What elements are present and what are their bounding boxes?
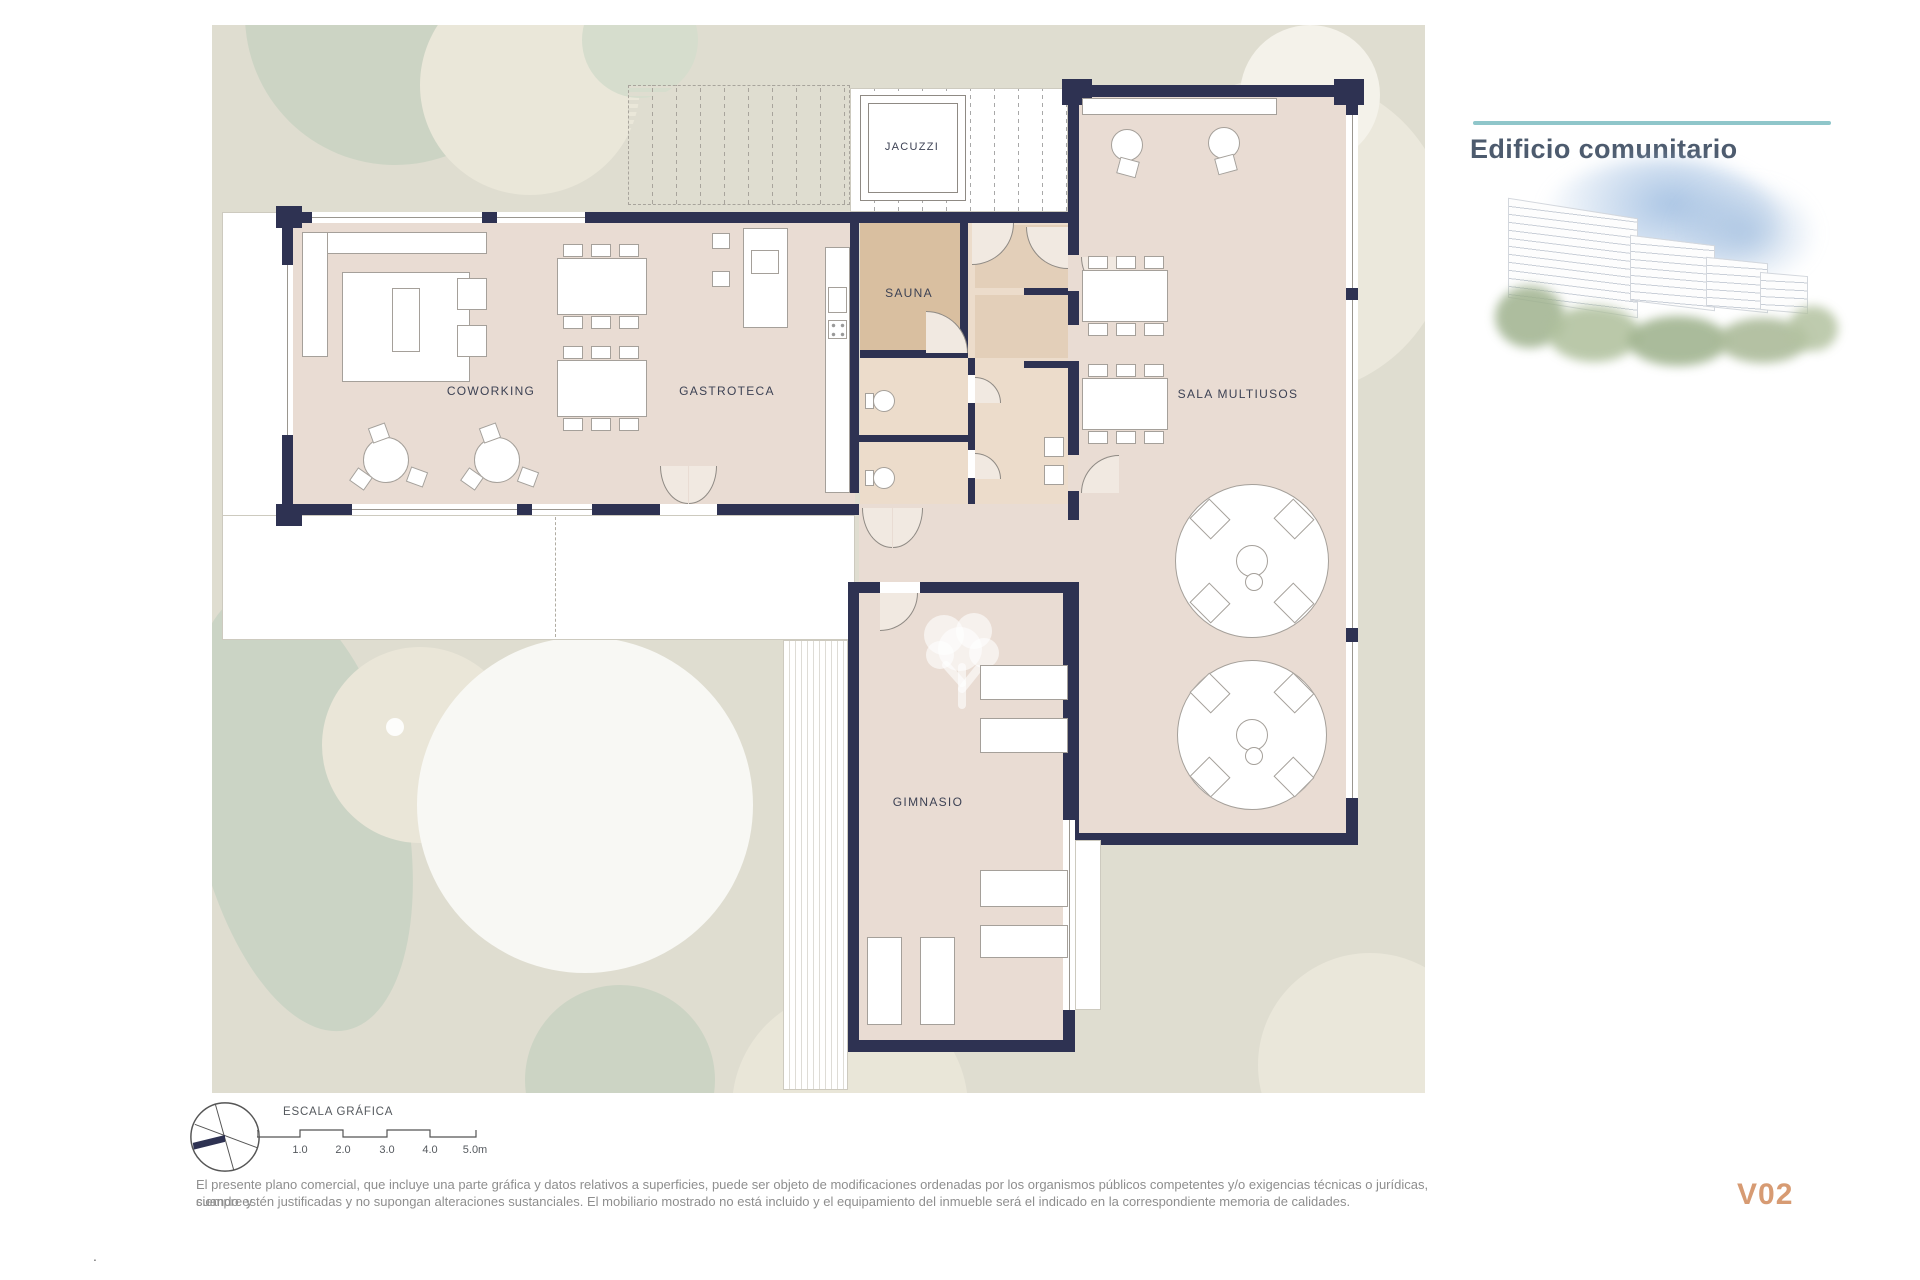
chair — [1144, 256, 1164, 269]
side-table — [1245, 573, 1263, 591]
door-opening — [1068, 255, 1079, 291]
deck-striped — [783, 640, 848, 1090]
landscape-circle — [525, 985, 715, 1093]
armchair — [457, 278, 487, 310]
scale-tick-label: 2.0 — [326, 1144, 360, 1156]
pouf — [1208, 127, 1240, 159]
kitchen-counter — [825, 247, 850, 493]
chair — [563, 316, 583, 329]
chair — [1116, 323, 1136, 336]
scale-tick-label: 4.0 — [413, 1144, 447, 1156]
wall-segment — [859, 435, 968, 442]
chair — [619, 346, 639, 359]
render-vegetation — [1548, 306, 1640, 362]
chair — [1116, 256, 1136, 269]
chair — [563, 244, 583, 257]
locker — [1044, 437, 1064, 457]
terrace-strip — [1075, 840, 1101, 1010]
stool — [712, 271, 730, 287]
chair — [1116, 364, 1136, 377]
toilet — [873, 390, 895, 412]
door-opening — [660, 504, 717, 515]
window — [497, 212, 585, 223]
armchair — [457, 325, 487, 357]
scale-tick-label: 1.0 — [283, 1144, 317, 1156]
chair — [619, 316, 639, 329]
pergola-dashed-area — [628, 85, 850, 205]
wall-segment — [1068, 833, 1358, 845]
table — [1082, 270, 1168, 322]
wall-segment — [848, 582, 859, 1052]
landscape-circle — [386, 718, 404, 736]
terrace-divider-line — [555, 517, 556, 637]
wall-segment — [850, 212, 859, 493]
render-vegetation — [1788, 306, 1838, 351]
table — [557, 258, 647, 315]
chair — [619, 244, 639, 257]
chair — [1088, 364, 1108, 377]
scale-bar-line — [257, 1126, 483, 1142]
window — [1346, 115, 1358, 288]
window — [282, 265, 293, 435]
landscape-circle — [1258, 953, 1425, 1093]
render-vegetation — [1628, 316, 1728, 366]
chair — [591, 418, 611, 431]
room-label-coworking: COWORKING — [447, 384, 535, 398]
chair — [1144, 431, 1164, 444]
table — [557, 360, 647, 417]
sofa — [302, 232, 328, 357]
chair — [1088, 256, 1108, 269]
scale-tick-label: 3.0 — [370, 1144, 404, 1156]
window — [312, 212, 482, 223]
room-label-sala-multiusos: SALA MULTIUSOS — [1178, 387, 1299, 401]
gym-equipment — [980, 870, 1068, 907]
scale-bar-title: ESCALA GRÁFICA — [283, 1106, 393, 1118]
floor-plan: JACUZZI COWORKING GASTROTECA — [212, 25, 1425, 1093]
cooktop — [828, 320, 847, 339]
page: { "header": { "title": "Edificio comunit… — [0, 0, 1920, 1280]
chair — [1088, 323, 1108, 336]
disclaimer-line-2: cuando estén justificadas y no supongan … — [196, 1193, 1456, 1210]
wall-segment — [1068, 85, 1358, 97]
counter — [1082, 98, 1277, 115]
window — [1346, 300, 1358, 628]
sofa — [302, 232, 487, 254]
gym-equipment — [980, 718, 1068, 753]
accent-line — [1473, 121, 1831, 125]
passage-opening — [1068, 520, 1079, 582]
room-label-jacuzzi: JACUZZI — [885, 141, 939, 153]
chair — [619, 418, 639, 431]
version-label: V02 — [1737, 1178, 1793, 1212]
render-building — [1706, 257, 1768, 314]
corner-mark: . — [93, 1248, 97, 1264]
toilet-tank — [865, 470, 874, 486]
door-opening — [880, 582, 920, 593]
chair — [591, 316, 611, 329]
stool — [712, 233, 730, 249]
scale-tick-label: 5.0m — [458, 1144, 492, 1156]
gym-mat — [920, 937, 955, 1025]
gym-equipment — [980, 665, 1068, 700]
gym-equipment — [980, 925, 1068, 958]
door-opening — [968, 375, 975, 403]
changing-cubicle — [975, 295, 1068, 358]
gym-mat — [867, 937, 902, 1025]
window — [532, 504, 592, 515]
coffee-table — [392, 288, 420, 352]
render-building — [1630, 235, 1715, 311]
island-sink — [751, 250, 779, 274]
room-label-sauna: SAUNA — [885, 286, 933, 300]
wall-segment — [1024, 361, 1068, 368]
terrace-south — [222, 515, 855, 640]
north-compass-icon — [186, 1098, 264, 1176]
wall-segment — [1024, 288, 1068, 295]
chair — [563, 346, 583, 359]
window — [352, 504, 517, 515]
locker — [1044, 465, 1064, 485]
chair — [1144, 364, 1164, 377]
room-label-gastroteca: GASTROTECA — [679, 384, 775, 398]
toilet-tank — [865, 393, 874, 409]
window — [1063, 820, 1075, 1010]
chair — [591, 244, 611, 257]
kitchen-sink — [828, 287, 847, 313]
building-render-image — [1500, 168, 1830, 368]
table — [1082, 378, 1168, 430]
door-opening — [1068, 325, 1079, 361]
chair — [563, 418, 583, 431]
chair — [1144, 323, 1164, 336]
wall-segment — [848, 1040, 1075, 1052]
kitchen-island — [743, 228, 788, 328]
chair — [591, 346, 611, 359]
pouf — [1111, 129, 1143, 161]
landscape-circle — [417, 637, 753, 973]
door-opening — [968, 450, 975, 478]
door-opening — [1068, 455, 1079, 491]
side-table — [1245, 747, 1263, 765]
room-label-gimnasio: GIMNASIO — [893, 795, 963, 809]
chair — [1116, 431, 1136, 444]
chair — [1088, 431, 1108, 444]
window — [1346, 642, 1358, 798]
toilet — [873, 467, 895, 489]
